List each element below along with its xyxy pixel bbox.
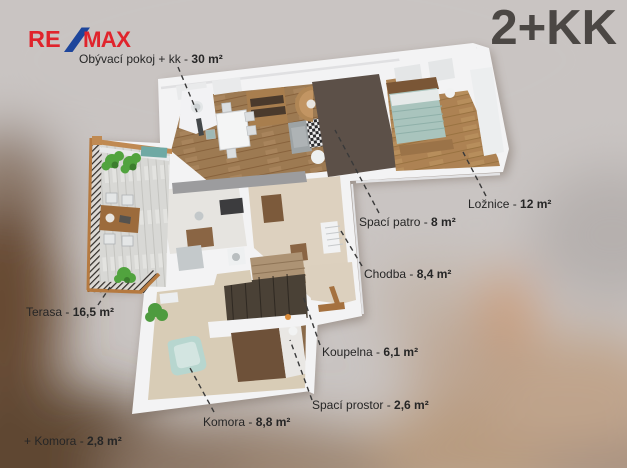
svg-text:Terasa - 16,5 m²: Terasa - 16,5 m² <box>26 305 114 319</box>
svg-text:Spací patro - 8 m²: Spací patro - 8 m² <box>359 215 456 229</box>
svg-text:Chodba - 8,4 m²: Chodba - 8,4 m² <box>364 267 451 281</box>
svg-text:Obývací pokoj + kk - 30 m²: Obývací pokoj + kk - 30 m² <box>79 52 223 66</box>
svg-text:Ložnice - 12 m²: Ložnice - 12 m² <box>468 197 551 211</box>
svg-text:Spací prostor - 2,6 m²: Spací prostor - 2,6 m² <box>312 398 429 412</box>
svg-text:MAX: MAX <box>83 27 131 52</box>
svg-text:+ Komora - 2,8 m²: + Komora - 2,8 m² <box>24 434 122 448</box>
svg-text:Komora - 8,8 m²: Komora - 8,8 m² <box>203 415 290 429</box>
svg-text:2+KK: 2+KK <box>490 1 617 55</box>
svg-text:RE: RE <box>28 26 61 52</box>
svg-text:Koupelna - 6,1 m²: Koupelna - 6,1 m² <box>322 345 418 359</box>
